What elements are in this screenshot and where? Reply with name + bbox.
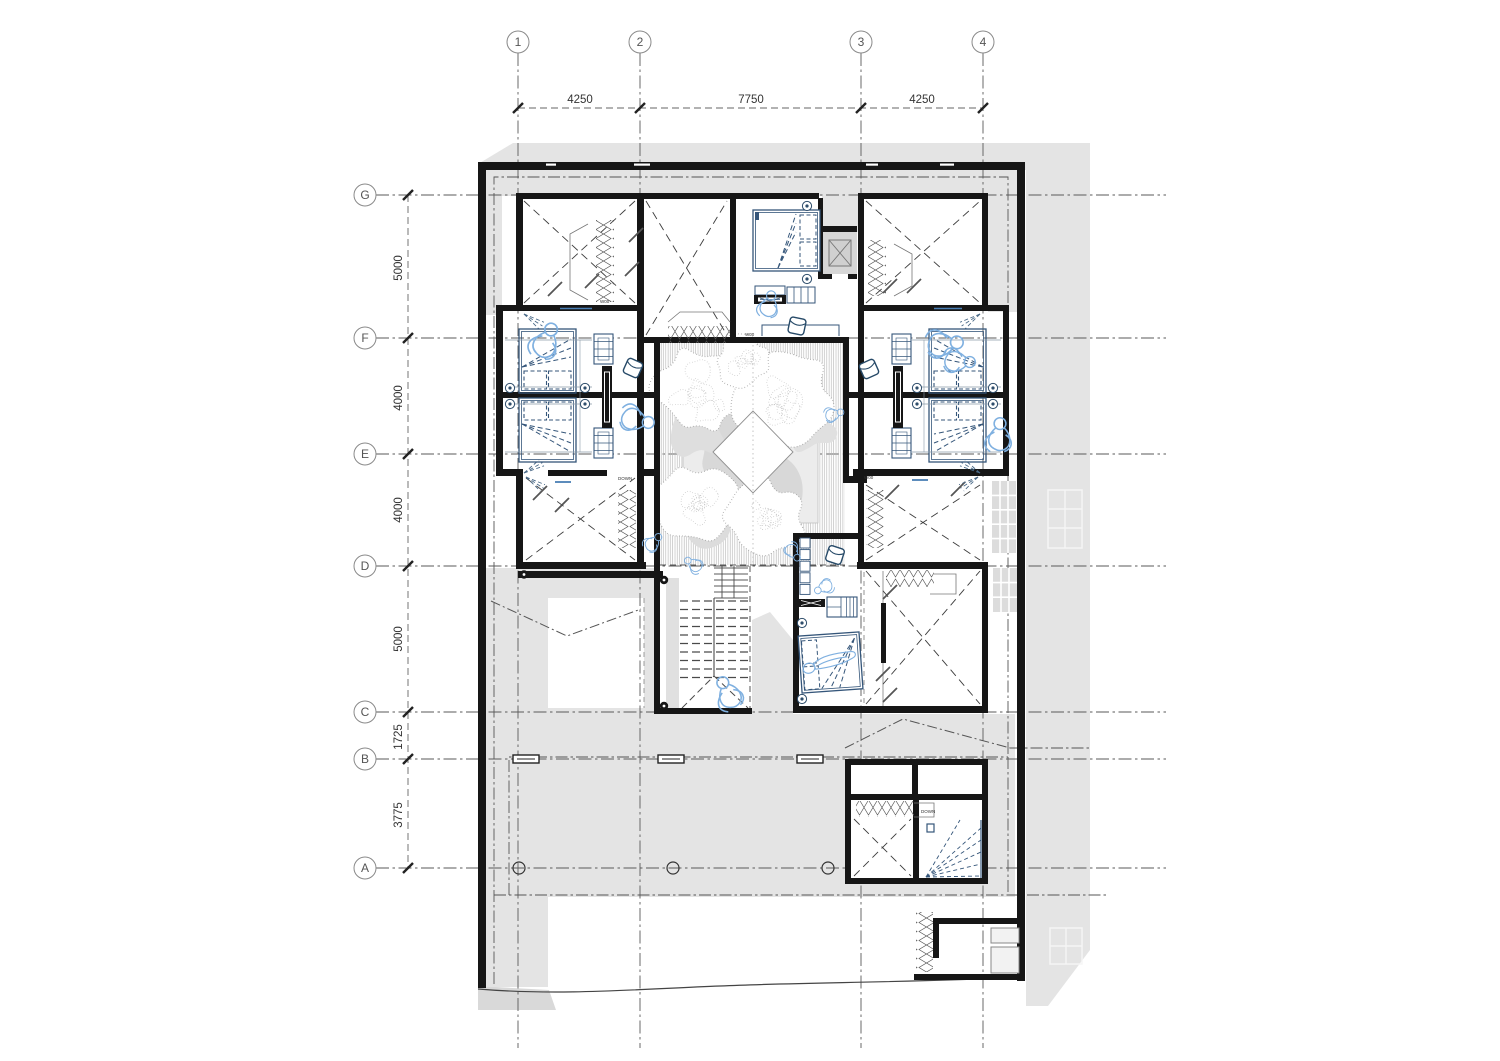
svg-text:B: B: [361, 752, 369, 766]
svg-text:4000: 4000: [393, 497, 405, 523]
svg-text:W00: W00: [745, 332, 755, 337]
svg-text:W00: W00: [864, 475, 874, 480]
svg-text:4250: 4250: [567, 94, 593, 106]
svg-text:5000: 5000: [393, 626, 405, 652]
svg-text:G: G: [360, 188, 369, 202]
svg-text:2: 2: [637, 35, 644, 49]
svg-text:1725: 1725: [393, 724, 405, 750]
svg-text:D: D: [361, 559, 370, 573]
svg-text:3: 3: [858, 35, 865, 49]
svg-text:E: E: [361, 447, 369, 461]
svg-text:A: A: [361, 861, 369, 875]
svg-text:4000: 4000: [393, 385, 405, 411]
svg-text:5000: 5000: [393, 255, 405, 281]
svg-text:4250: 4250: [909, 94, 935, 106]
svg-text:1: 1: [515, 35, 522, 49]
svg-text:4: 4: [980, 35, 987, 49]
svg-text:F: F: [361, 331, 368, 345]
svg-text:C: C: [361, 705, 370, 719]
svg-text:DOWN: DOWN: [921, 809, 935, 814]
svg-text:W00: W00: [600, 299, 610, 304]
svg-text:DOWN: DOWN: [618, 476, 632, 481]
svg-text:7750: 7750: [738, 94, 764, 106]
svg-text:3775: 3775: [393, 802, 405, 828]
